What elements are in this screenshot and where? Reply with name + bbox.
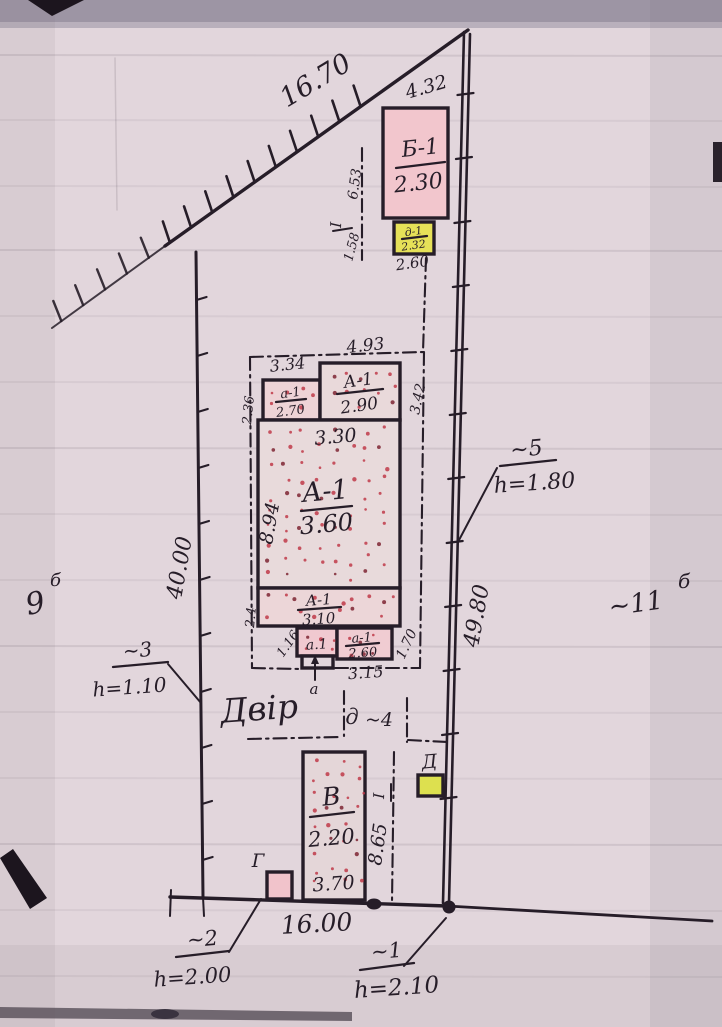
building-b1-label: Б-1 (399, 134, 440, 163)
fence3-number: ~3 (122, 637, 153, 663)
building-a1-annex-label: а-1 (279, 385, 301, 403)
building-g-outline (267, 872, 292, 899)
dim-370: 3.70 (312, 872, 356, 897)
dim-330: 3.30 (313, 424, 357, 450)
building-v-label: В (320, 781, 342, 812)
fence5-number: ~5 (509, 436, 543, 464)
scanned-site-plan-photo: 16.70 4.32 Б-1 2.30 6.53 І 1.58 д-1 2.32… (0, 0, 722, 1027)
building-a1-strip-value: 3.10 (301, 609, 336, 629)
building-a1-porch-value: 2.60 (347, 645, 378, 662)
gate-letter: д (345, 705, 358, 729)
building-a1-porch-label: а-1 (351, 630, 372, 646)
building-a-small-label: а.1 (305, 636, 328, 653)
porch-ref-letter: а (310, 680, 319, 698)
dim-493: 4.93 (345, 334, 386, 358)
parcel-right-suffix: б (678, 569, 691, 593)
boundary-corner-point (443, 901, 456, 914)
dim-236: 2.36 (240, 395, 258, 426)
building-a1-top-label: А-1 (341, 369, 374, 393)
fence1-number: ~1 (370, 938, 403, 965)
fence2-number: ~2 (186, 926, 219, 953)
building-a1-strip-label: А-1 (304, 590, 332, 610)
building-d1-label: д-1 (404, 224, 423, 239)
yard-label: Двір (217, 686, 299, 730)
junction-blob (367, 899, 382, 910)
dim-bottom-length: 16.00 (280, 907, 353, 940)
building-b1-value: 2.30 (392, 169, 444, 199)
building-d-shed-label: Д (420, 750, 439, 773)
dim-24: 2.4 (243, 606, 260, 629)
gate-number: ~4 (365, 709, 393, 731)
site-plan-drawing: 16.70 4.32 Б-1 2.30 6.53 І 1.58 д-1 2.32… (0, 0, 722, 1027)
building-d-shed-outline (418, 775, 443, 796)
dim-315: 3.15 (347, 662, 384, 683)
building-g-label: Г (251, 850, 266, 872)
parcel-left-suffix: б (50, 570, 62, 591)
building-a1-main-label: А-1 (299, 474, 350, 509)
building-v-value: 2.20 (306, 824, 356, 852)
dim-334: 3.34 (269, 353, 306, 376)
building-a1-main-value: 3.60 (298, 508, 354, 541)
